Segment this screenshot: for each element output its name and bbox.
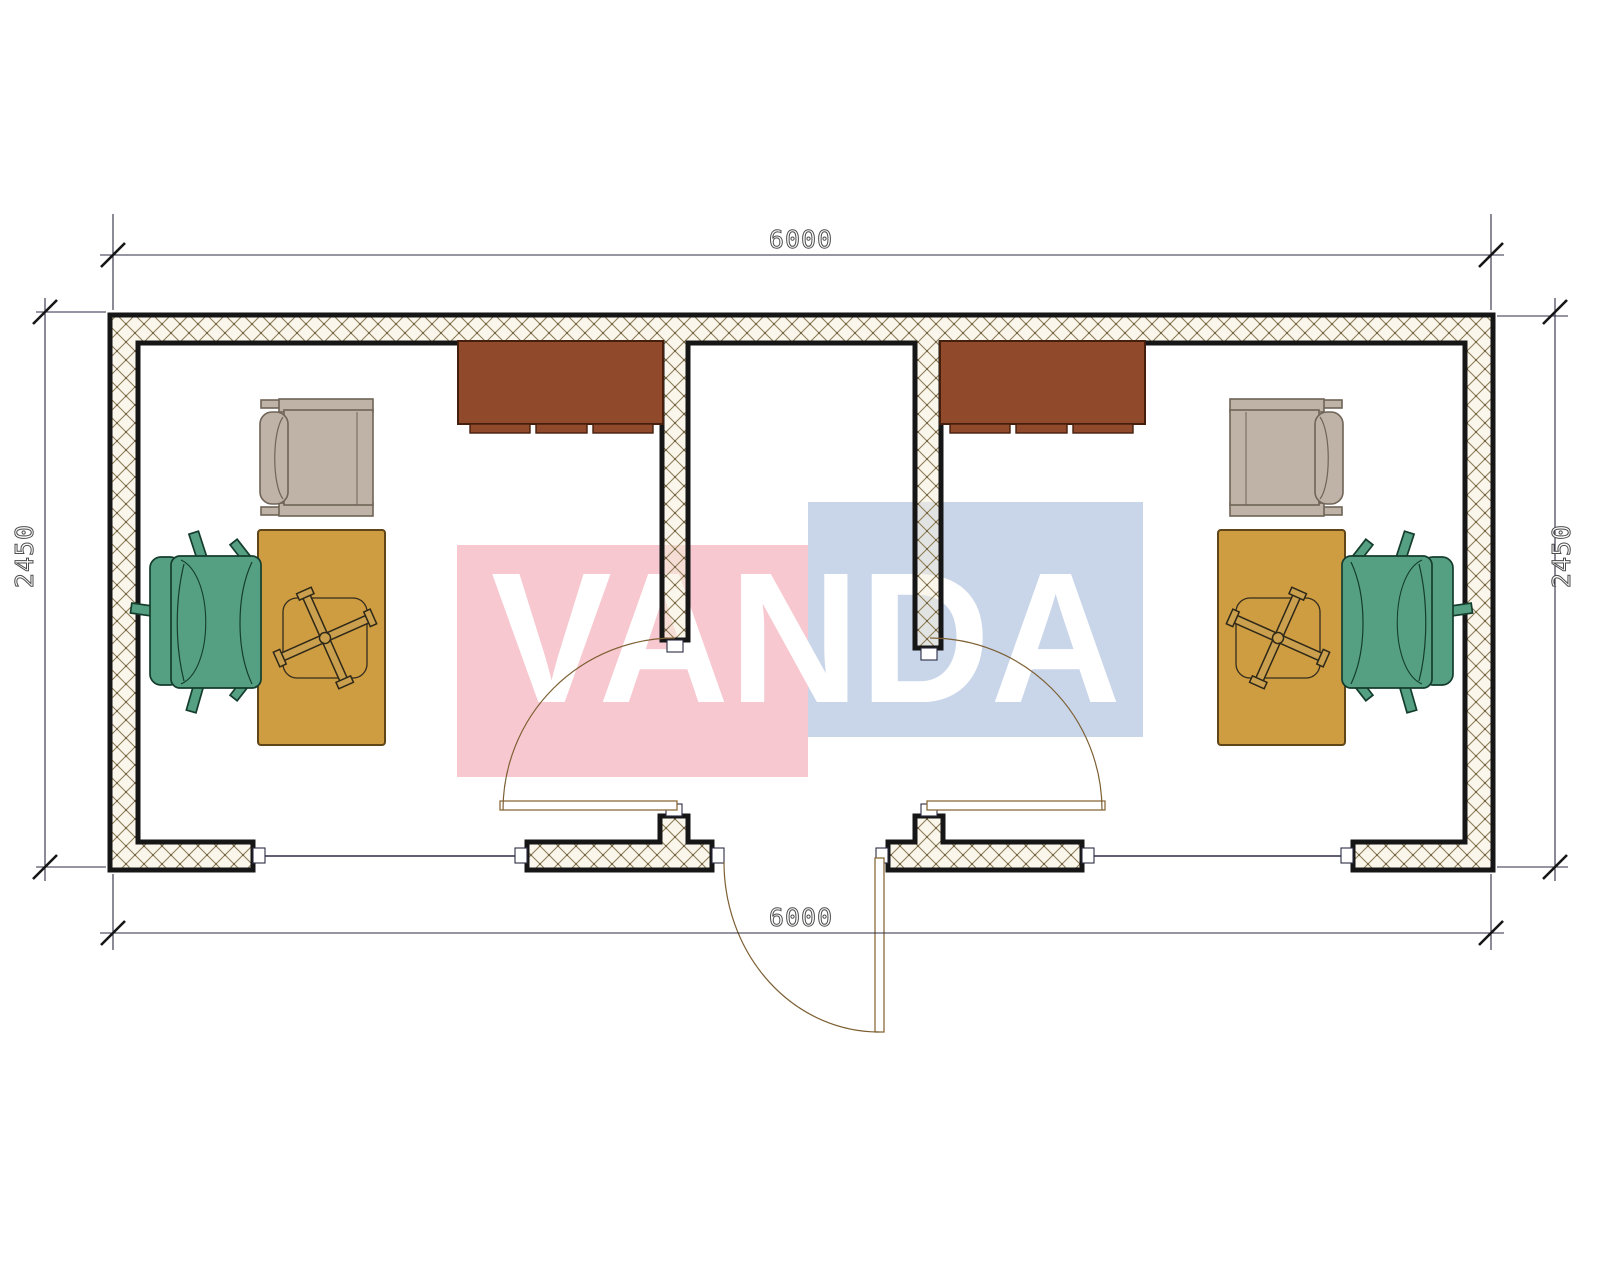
door-leaf — [875, 858, 884, 1032]
door-leaf — [927, 801, 1105, 810]
door-leaf — [500, 801, 677, 810]
floor-plan-canvas: VANDA — [0, 0, 1600, 1280]
dim-label-top: 6000 — [769, 225, 833, 254]
dim-label-right: 2450 — [1547, 524, 1576, 588]
dim-label-bottom: 6000 — [769, 903, 833, 932]
bottom-wall-right-segment — [888, 816, 1082, 870]
watermark-text: VANDA — [491, 535, 1121, 742]
dim-label-left: 2450 — [10, 524, 39, 588]
bottom-wall-left-segment — [527, 816, 712, 870]
door-swing-arc — [724, 862, 879, 1032]
watermark: VANDA — [457, 502, 1143, 777]
door-entrance — [724, 858, 884, 1032]
